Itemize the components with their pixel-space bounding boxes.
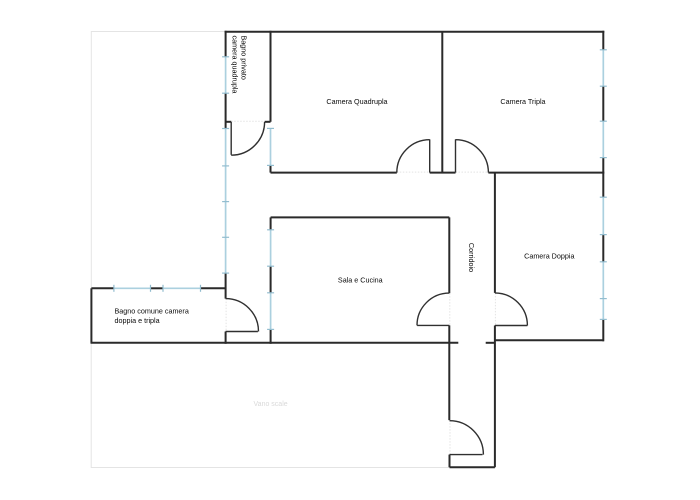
svg-text:Corridoio: Corridoio bbox=[467, 243, 476, 272]
svg-text:camera quadrupla: camera quadrupla bbox=[230, 36, 239, 94]
svg-text:Camera Doppia: Camera Doppia bbox=[524, 252, 574, 261]
svg-text:Camera Tripla: Camera Tripla bbox=[500, 97, 545, 106]
svg-text:doppia e tripla: doppia e tripla bbox=[115, 316, 160, 325]
svg-text:Bagno privato: Bagno privato bbox=[240, 36, 249, 80]
svg-text:Sala e Cucina: Sala e Cucina bbox=[338, 275, 383, 284]
svg-text:Vano scale: Vano scale bbox=[254, 401, 288, 408]
svg-text:Bagno comune camera: Bagno comune camera bbox=[115, 306, 189, 315]
svg-text:Camera Quadrupla: Camera Quadrupla bbox=[326, 97, 387, 106]
